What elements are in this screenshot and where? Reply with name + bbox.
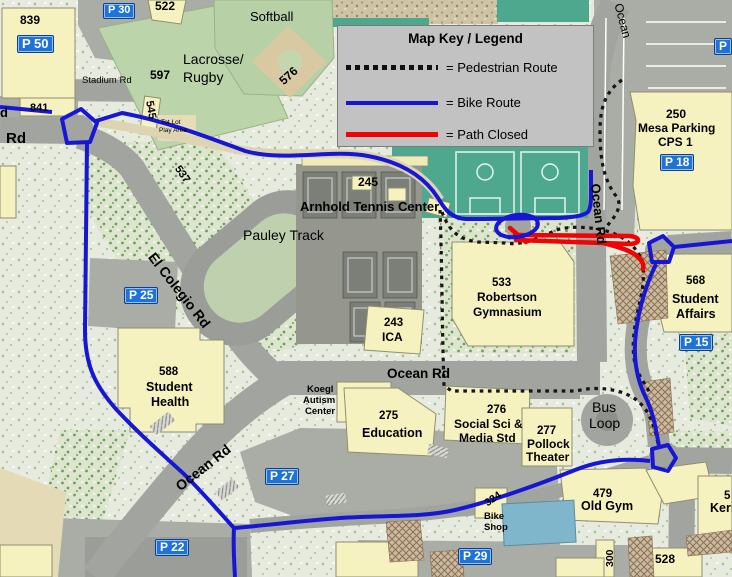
student-health-label2: Health xyxy=(151,396,189,409)
student-affairs-number: 568 xyxy=(686,275,705,287)
kerr-label: Kerr xyxy=(710,502,732,515)
old-gym-label: Old Gym xyxy=(581,500,633,513)
social-sci-label2: Media Std xyxy=(459,432,516,445)
bus-loop-label1: Bus xyxy=(592,400,616,415)
legend-item-bike: = Bike Route xyxy=(346,95,587,110)
legend-item-label: = Path Closed xyxy=(446,127,528,142)
building-label-839: 839 xyxy=(20,14,40,27)
parking-badge-p25: P 25 xyxy=(124,287,158,304)
legend-title: Map Key / Legend xyxy=(338,31,593,46)
robertson-gym-label2: Gymnasium xyxy=(473,306,542,319)
pedestrian-route-sample-icon xyxy=(346,65,438,70)
tot-lot-label: Tot Lot xyxy=(161,120,181,127)
bike-route-sample-icon xyxy=(346,101,438,105)
softball-field-label: Softball xyxy=(250,10,293,24)
ica-label: ICA xyxy=(382,331,403,344)
road-label-partial-rd: Rd xyxy=(6,131,26,147)
koegl-label3: Center xyxy=(305,407,335,417)
mesa-parking-cps: CPS 1 xyxy=(658,136,693,149)
student-health-label1: Student xyxy=(146,381,193,394)
parking-badge-p22: P 22 xyxy=(155,539,189,556)
bike-shop-label1: Bike xyxy=(484,512,504,522)
map-legend: Map Key / Legend = Pedestrian Route = Bi… xyxy=(337,25,594,147)
play-area-label: Play Area xyxy=(159,128,187,135)
koegl-label1: Koegl xyxy=(307,385,333,395)
lacrosse-field-label: Lacrosse/ xyxy=(183,52,244,67)
stadium-rd-label: Stadium Rd xyxy=(82,76,132,86)
pollock-number: 277 xyxy=(537,425,556,437)
koegl-label2: Autism xyxy=(303,396,335,406)
legend-item-label: = Bike Route xyxy=(446,95,521,110)
bike-shop-label2: Shop xyxy=(484,523,508,533)
legend-item-label: = Pedestrian Route xyxy=(446,60,558,75)
robertson-gym-number: 533 xyxy=(492,277,511,289)
mesa-parking-name: Mesa Parking xyxy=(638,122,715,135)
parking-badge-p30: P 30 xyxy=(103,3,135,19)
campus-map[interactable]: Map Key / Legend = Pedestrian Route = Bi… xyxy=(0,0,732,577)
ocean-rd-label-horizontal: Ocean Rd xyxy=(387,367,450,381)
building-label-522: 522 xyxy=(155,0,175,13)
road-label-partial-d: d xyxy=(0,106,8,120)
parking-badge-cut: P xyxy=(714,38,732,55)
parking-badge-p29: P 29 xyxy=(458,548,492,565)
ica-number: 243 xyxy=(384,317,403,329)
pollock-label1: Pollock xyxy=(527,438,570,451)
education-number: 275 xyxy=(379,410,398,422)
pauley-track-label: Pauley Track xyxy=(243,228,324,243)
legend-item-pedestrian: = Pedestrian Route xyxy=(346,60,587,75)
parking-badge-p15: P 15 xyxy=(679,334,713,351)
education-label: Education xyxy=(362,427,422,440)
student-health-number: 588 xyxy=(159,366,178,378)
social-sci-label1: Social Sci & xyxy=(454,418,523,431)
path-closed-sample-icon xyxy=(346,132,438,137)
building-label-300: 300 xyxy=(605,549,616,567)
social-sci-number: 276 xyxy=(487,404,506,416)
robertson-gym-label1: Robertson xyxy=(477,291,537,304)
building-label-528: 528 xyxy=(655,553,675,566)
student-affairs-label2: Affairs xyxy=(676,308,716,321)
building-label-545: 545 xyxy=(143,100,158,120)
building-label-597: 597 xyxy=(150,69,170,82)
bus-loop-label2: Loop xyxy=(589,416,620,431)
swimming-pool xyxy=(502,500,576,546)
tennis-center-number: 245 xyxy=(358,176,378,189)
student-affairs-label1: Student xyxy=(672,293,719,306)
pollock-label2: Theater xyxy=(526,451,569,464)
arnhold-tennis-center-label: Arnhold Tennis Center xyxy=(300,200,439,214)
building-label-841: 841 xyxy=(30,103,48,115)
parking-badge-p18: P 18 xyxy=(660,154,694,171)
mesa-parking-number: 250 xyxy=(666,108,686,121)
legend-item-closed: = Path Closed xyxy=(346,127,587,142)
rugby-field-label: Rugby xyxy=(183,70,223,85)
parking-badge-p50: P 50 xyxy=(17,35,54,53)
parking-badge-p27: P 27 xyxy=(265,468,299,485)
